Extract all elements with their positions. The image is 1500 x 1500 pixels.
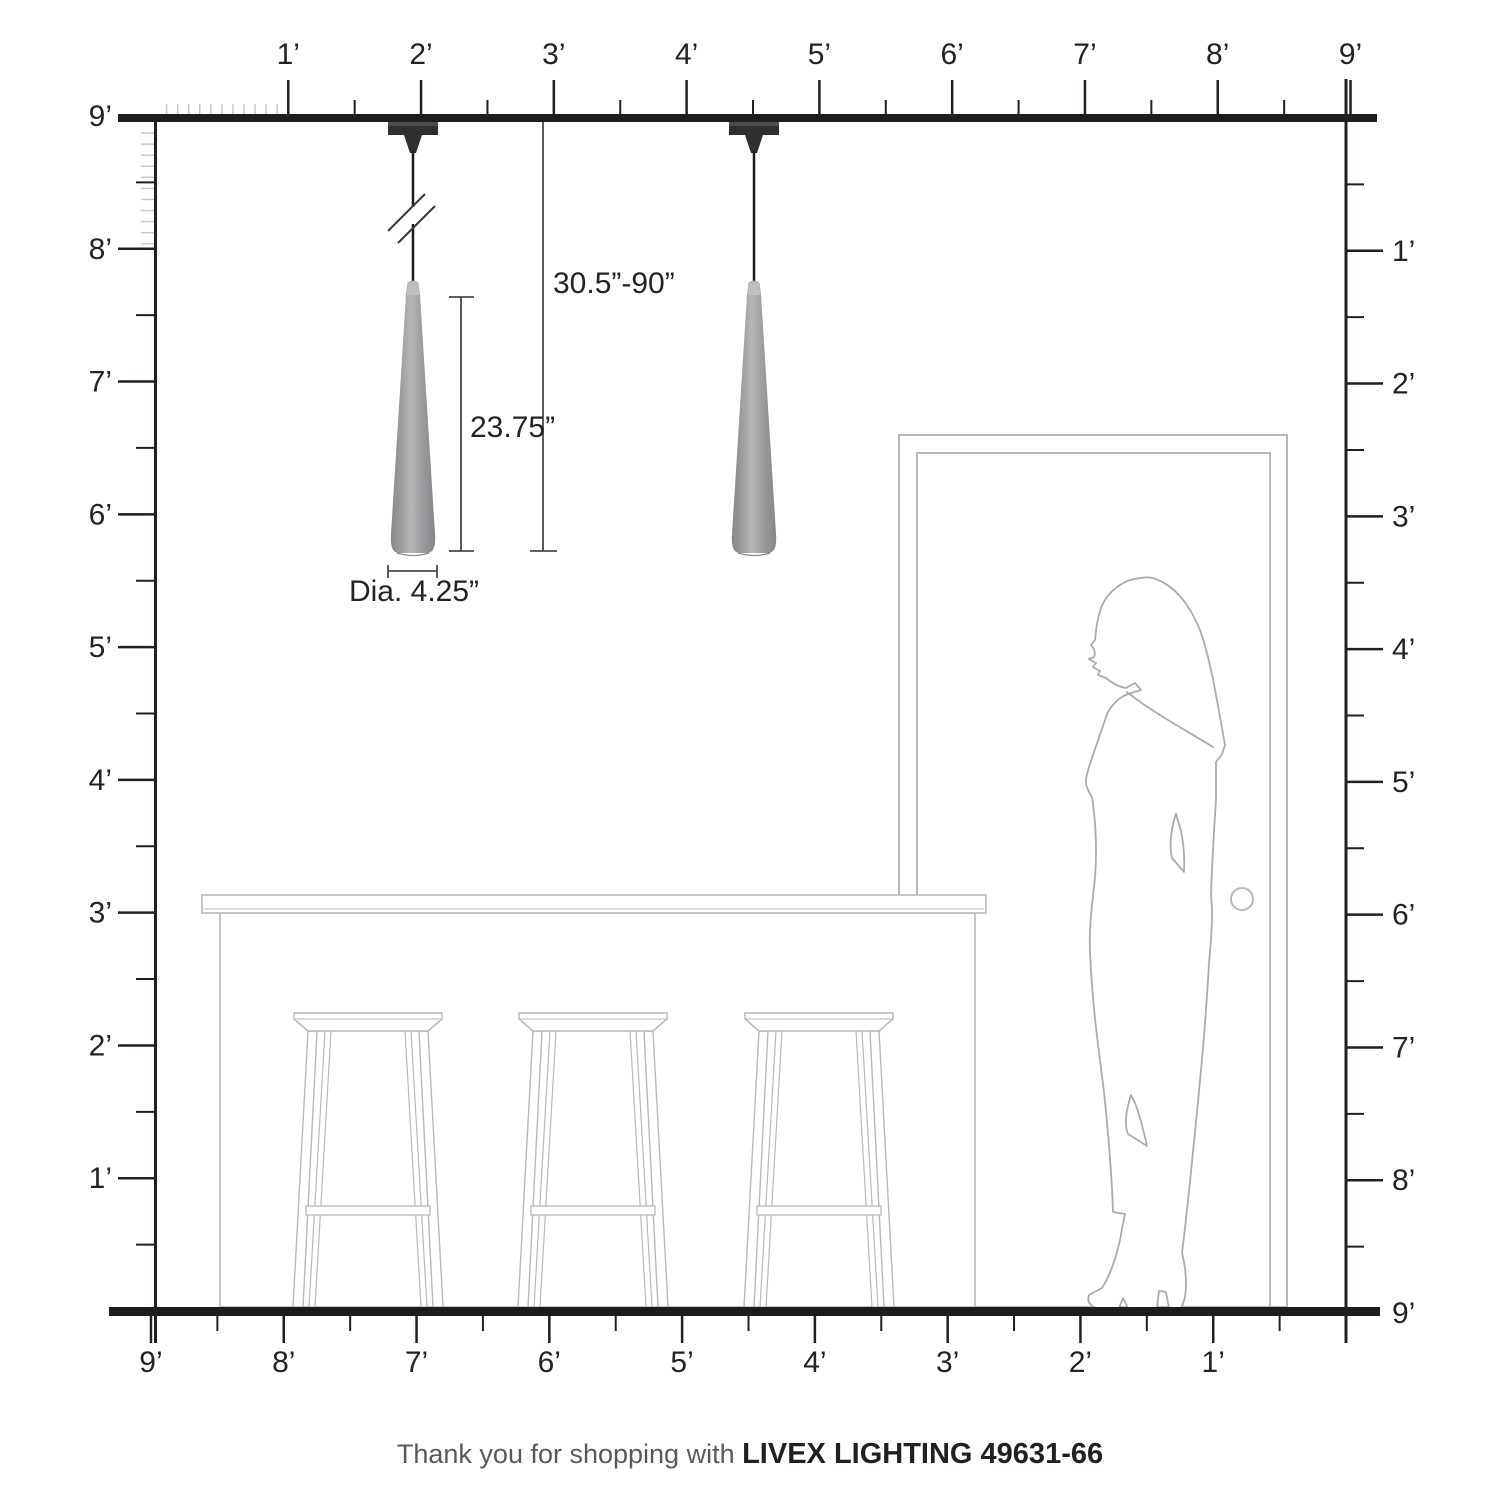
left-ruler-label: 9’ xyxy=(89,100,112,133)
cord-break-slash xyxy=(388,194,425,231)
left-ruler-label: 5’ xyxy=(89,631,112,664)
left-ruler-label: 6’ xyxy=(89,498,112,531)
top-ruler-label: 8’ xyxy=(1206,38,1229,71)
top-ruler-label: 7’ xyxy=(1073,38,1096,71)
right-ruler-label: 3’ xyxy=(1392,500,1415,533)
right-ruler-label: 4’ xyxy=(1392,633,1415,666)
bottom-ruler-label: 7’ xyxy=(405,1346,428,1379)
right-ruler-label: 9’ xyxy=(1392,1297,1415,1330)
cord-break-slash xyxy=(398,206,435,243)
top-ruler-label: 4’ xyxy=(675,38,698,71)
pendant-right xyxy=(729,122,779,556)
bottom-ruler-label: 5’ xyxy=(670,1346,693,1379)
right-ruler-label: 6’ xyxy=(1392,899,1415,932)
fixture-height-dimension: 23.75” xyxy=(470,411,555,444)
footer-text: Thank you for shopping with LIVEX LIGHTI… xyxy=(0,1438,1500,1471)
left-ruler-label: 1’ xyxy=(89,1162,112,1195)
diagram-canvas: 1’2’3’4’5’6’7’8’9’9’8’7’6’5’4’3’2’1’9’8’… xyxy=(0,0,1500,1500)
top-ruler-label: 3’ xyxy=(542,38,565,71)
floor-line xyxy=(109,1307,1380,1316)
right-ruler-label: 2’ xyxy=(1392,368,1415,401)
track-mount-left xyxy=(388,122,438,153)
top-ruler-label: 5’ xyxy=(808,38,831,71)
track-mount-right xyxy=(729,122,779,153)
right-ruler-label: 5’ xyxy=(1392,766,1415,799)
bottom-ruler-label: 1’ xyxy=(1202,1346,1225,1379)
footer-prefix: Thank you for shopping with xyxy=(397,1439,742,1469)
left-ruler-label: 3’ xyxy=(89,897,112,930)
hang-range-dimension: 30.5”-90” xyxy=(553,267,675,300)
left-ruler-label: 4’ xyxy=(89,764,112,797)
scale-diagram: 1’2’3’4’5’6’7’8’9’9’8’7’6’5’4’3’2’1’9’8’… xyxy=(0,0,1500,1500)
right-ruler-label: 7’ xyxy=(1392,1031,1415,1064)
left-ruler-label: 8’ xyxy=(89,233,112,266)
diameter-dimension: Dia. 4.25” xyxy=(349,575,479,608)
top-ruler-label: 1’ xyxy=(277,38,300,71)
bottom-ruler-label: 3’ xyxy=(936,1346,959,1379)
cone-shade-right xyxy=(732,281,776,556)
cone-shade-left xyxy=(391,281,435,556)
top-ruler-label: 2’ xyxy=(409,38,432,71)
right-ruler-label: 8’ xyxy=(1392,1164,1415,1197)
door-knob xyxy=(1231,888,1253,910)
right-ruler-label: 1’ xyxy=(1392,235,1415,268)
bottom-ruler-label: 2’ xyxy=(1069,1346,1092,1379)
top-ruler-label: 6’ xyxy=(941,38,964,71)
bottom-ruler-label: 8’ xyxy=(272,1346,295,1379)
bottom-ruler-label: 6’ xyxy=(538,1346,561,1379)
left-ruler-label: 7’ xyxy=(89,366,112,399)
bottom-ruler-label: 9’ xyxy=(139,1346,162,1379)
ceiling-line xyxy=(118,114,1377,122)
footer-brand: LIVEX LIGHTING 49631-66 xyxy=(742,1438,1103,1470)
left-ruler-label: 2’ xyxy=(89,1029,112,1062)
bottom-ruler-label: 4’ xyxy=(803,1346,826,1379)
top-ruler-label: 9’ xyxy=(1339,38,1362,71)
pendant-left xyxy=(388,122,438,556)
